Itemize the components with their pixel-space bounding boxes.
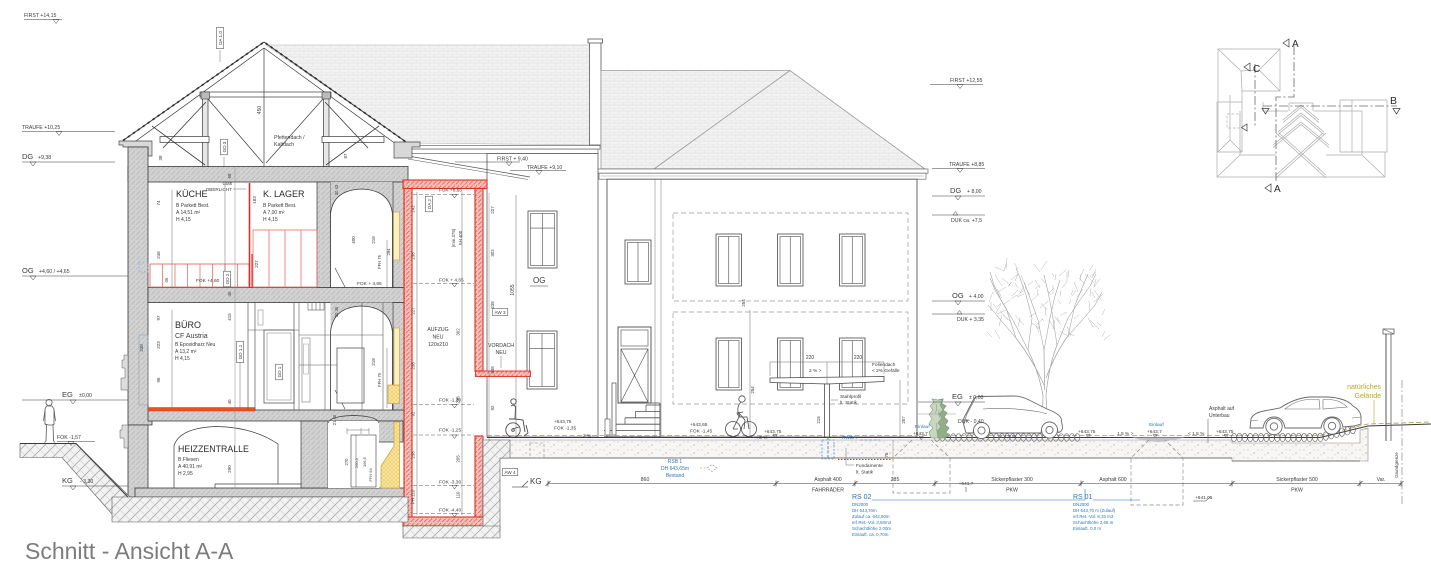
svg-text:DA 2: DA 2 <box>427 199 432 209</box>
svg-text:227: 227 <box>411 307 416 315</box>
svg-text:218: 218 <box>371 236 376 244</box>
svg-text:< 1,5 %: < 1,5 % <box>1000 434 1017 440</box>
svg-text:227: 227 <box>254 260 259 268</box>
svg-text:KÜCHE: KÜCHE <box>176 189 208 199</box>
svg-text:Stahlprofil: Stahlprofil <box>840 394 861 400</box>
svg-text:+643,75: +643,75 <box>764 429 782 435</box>
svg-text:Asphalt auf: Asphalt auf <box>1209 406 1235 412</box>
svg-text:110: 110 <box>456 491 461 499</box>
svg-text:257: 257 <box>901 416 906 424</box>
svg-text:254: 254 <box>741 299 746 307</box>
svg-text:DH 643,70 m (Zulauf): DH 643,70 m (Zulauf) <box>1073 508 1116 513</box>
svg-text:OBERLICHT: OBERLICHT <box>206 187 232 192</box>
svg-text:FIRST +14,15: FIRST +14,15 <box>24 13 56 19</box>
svg-text:1,5 % >: 1,5 % > <box>1117 431 1134 437</box>
svg-text:NEU: NEU <box>433 335 444 341</box>
svg-text:45: 45 <box>227 291 232 297</box>
svg-text:Unterbau: Unterbau <box>1209 413 1230 419</box>
svg-text:A 7,00 m²: A 7,00 m² <box>263 210 285 216</box>
svg-text:PH 110: PH 110 <box>411 489 416 504</box>
svg-text:30 36: 30 36 <box>334 306 339 317</box>
svg-text:238: 238 <box>411 451 416 459</box>
svg-text:Pfettendach /: Pfettendach / <box>274 135 305 141</box>
svg-text:338: 338 <box>139 344 144 352</box>
svg-text:Asphalt 600: Asphalt 600 <box>1099 477 1127 483</box>
svg-text:Grundgrenze: Grundgrenze <box>1394 452 1399 478</box>
svg-text:RSB 1: RSB 1 <box>668 459 683 465</box>
svg-text:DG: DG <box>22 152 33 161</box>
svg-text:H 4,15: H 4,15 <box>176 217 191 223</box>
svg-text:+643,7: +643,7 <box>1147 429 1162 435</box>
svg-text:DN2000: DN2000 <box>852 502 869 507</box>
svg-text:RWDA: RWDA <box>842 435 857 441</box>
svg-text:DUK - 0,40: DUK - 0,40 <box>958 419 984 425</box>
svg-text:Sickerpflaster 300: Sickerpflaster 300 <box>991 477 1033 483</box>
svg-text:30 43: 30 43 <box>334 184 339 195</box>
svg-text:SH 400: SH 400 <box>458 230 463 245</box>
svg-text:+641,05: +641,05 <box>1195 495 1213 501</box>
svg-text:B Parkett Best.: B Parkett Best. <box>176 203 209 209</box>
svg-text:2 %: 2 % <box>583 433 592 439</box>
svg-text:FOK -4,40: FOK -4,40 <box>439 508 461 514</box>
svg-text:AUFZUG: AUFZUG <box>427 327 448 333</box>
svg-text:AW 3: AW 3 <box>494 310 506 315</box>
svg-text:06: 06 <box>164 277 169 282</box>
svg-text:238: 238 <box>411 362 416 370</box>
svg-text:FOK +4,60: FOK +4,60 <box>196 278 220 284</box>
svg-text:Bestand: Bestand <box>666 473 685 479</box>
svg-text:+641,7: +641,7 <box>959 481 974 487</box>
svg-text:TRAUFE +9,10: TRAUFE +9,10 <box>527 165 562 171</box>
svg-text:erf.Ret.-Vol. 8,33 m3: erf.Ret.-Vol. 8,33 m3 <box>1073 514 1114 519</box>
svg-text:±0,00: ±0,00 <box>79 393 92 399</box>
svg-text:Schnitt - Ansicht A-A: Schnitt - Ansicht A-A <box>25 538 234 564</box>
svg-text:TRAUFE +10,25: TRAUFE +10,25 <box>22 125 60 131</box>
svg-text:+643,75: +643,75 <box>554 419 572 425</box>
svg-text:+643,75: +643,75 <box>1216 429 1234 435</box>
svg-text:Fundamente: Fundamente <box>856 463 883 469</box>
svg-text:97: 97 <box>156 315 161 321</box>
svg-text:BÜRO: BÜRO <box>175 320 201 330</box>
svg-text:natürliches: natürliches <box>1347 384 1381 391</box>
svg-text:FOK -1,35: FOK -1,35 <box>554 426 576 432</box>
svg-text:183: 183 <box>252 196 257 204</box>
svg-text:96: 96 <box>156 377 161 383</box>
svg-text:B Epoxidharz Neu: B Epoxidharz Neu <box>175 342 216 348</box>
svg-text:A 40,91 m²: A 40,91 m² <box>178 464 203 470</box>
svg-text:218: 218 <box>371 358 376 366</box>
svg-text:270: 270 <box>344 458 349 466</box>
svg-text:Foliendach: Foliendach <box>872 362 896 368</box>
svg-text:B Fliesen: B Fliesen <box>178 457 199 463</box>
svg-text:+ 8,00: + 8,00 <box>967 189 982 195</box>
svg-text:DA 1.0: DA 1.0 <box>218 31 223 45</box>
svg-text:400: 400 <box>351 236 356 244</box>
svg-text:+9,38: +9,38 <box>38 155 51 161</box>
svg-text:EG: EG <box>952 392 963 401</box>
svg-text:246: 246 <box>156 251 161 259</box>
svg-text:Einlauft. ca. 0,70m: Einlauft. ca. 0,70m <box>852 532 889 537</box>
svg-text:DH 643,70m: DH 643,70m <box>852 508 877 513</box>
svg-text:< 3 %: < 3 % <box>755 435 768 441</box>
svg-text:DN2000: DN2000 <box>1073 502 1090 507</box>
svg-text:A 13,2 m²: A 13,2 m² <box>175 349 197 355</box>
svg-text:H 4,15: H 4,15 <box>263 217 278 223</box>
svg-text:DUK + 3,35: DUK + 3,35 <box>957 317 984 323</box>
svg-text:+643,65: +643,65 <box>690 422 708 428</box>
svg-text:H 2,95: H 2,95 <box>178 471 193 477</box>
svg-text:RS 02: RS 02 <box>852 494 872 501</box>
svg-text:1055: 1055 <box>510 284 516 295</box>
svg-text:K. LAGER: K. LAGER <box>263 189 305 199</box>
svg-text:74: 74 <box>156 200 161 206</box>
svg-text:FAHRRÄDER: FAHRRÄDER <box>812 487 844 494</box>
svg-text:CF Austria: CF Austria <box>175 333 208 340</box>
svg-text:OG: OG <box>533 276 545 285</box>
svg-text:lt. Statik: lt. Statik <box>840 400 858 406</box>
svg-text:+ 4,00: + 4,00 <box>969 294 984 300</box>
svg-text:294: 294 <box>386 248 391 256</box>
svg-text:FOK + 4,65: FOK + 4,65 <box>357 281 382 287</box>
svg-text:Einlauf: Einlauf <box>915 424 930 430</box>
svg-text:450: 450 <box>257 106 263 115</box>
svg-text:PKW: PKW <box>1291 488 1303 494</box>
svg-text:223: 223 <box>156 341 161 349</box>
svg-text:< 1,5 %: < 1,5 % <box>1188 431 1205 437</box>
svg-text:38: 38 <box>158 155 163 161</box>
svg-text:+4,60 / +4,65: +4,60 / +4,65 <box>39 269 70 275</box>
svg-text:75: 75 <box>884 452 889 457</box>
svg-text:Glas: Glas <box>223 181 233 186</box>
svg-text:GD 2: GD 2 <box>225 273 230 284</box>
svg-text:860: 860 <box>641 477 650 483</box>
svg-text:238: 238 <box>456 396 461 404</box>
svg-text:A: A <box>1292 39 1299 50</box>
svg-text:254: 254 <box>750 386 755 394</box>
svg-text:OG: OG <box>22 266 34 275</box>
svg-text:Var.: Var. <box>1377 477 1386 483</box>
svg-text:Einlauf: Einlauf <box>1149 422 1164 428</box>
svg-text:285: 285 <box>891 477 900 483</box>
svg-text:DG: DG <box>950 186 961 195</box>
svg-text:302: 302 <box>456 328 461 336</box>
svg-text:GD 1.1: GD 1.1 <box>238 344 243 359</box>
svg-text:VORDACH: VORDACH <box>488 343 514 349</box>
svg-text:Gelände: Gelände <box>1355 393 1382 400</box>
svg-text:Sickerpflaster 500: Sickerpflaster 500 <box>1276 477 1318 483</box>
svg-text:FOK -3,30: FOK -3,30 <box>439 480 461 486</box>
svg-text:KG: KG <box>530 477 542 486</box>
svg-text:(min.375): (min.375) <box>451 228 456 247</box>
svg-text:FFH 94: FFH 94 <box>368 468 373 482</box>
svg-text:92: 92 <box>490 405 495 410</box>
svg-text:+643,75: +643,75 <box>1078 429 1096 435</box>
svg-text:B Parkett Best.: B Parkett Best. <box>263 203 296 209</box>
svg-text:B: B <box>1390 95 1397 107</box>
svg-text:+643,7: +643,7 <box>913 431 928 437</box>
svg-text:FFH 76: FFH 76 <box>377 372 382 387</box>
svg-text:A 14,51 m²: A 14,51 m² <box>176 210 201 216</box>
svg-text:FUK +8,65: FUK +8,65 <box>439 188 462 194</box>
svg-text:FIRST +12,55: FIRST +12,55 <box>950 78 982 84</box>
svg-text:DH 643,65m: DH 643,65m <box>661 466 689 472</box>
svg-text:166,5: 166,5 <box>362 456 367 467</box>
svg-text:68: 68 <box>227 173 232 179</box>
svg-text:FOK -1,25: FOK -1,25 <box>439 428 461 434</box>
svg-text:C: C <box>1253 64 1260 75</box>
svg-text:FOK + 4,65: FOK + 4,65 <box>439 278 464 284</box>
svg-text:Einlauft. 0,0 m: Einlauft. 0,0 m <box>1073 526 1101 531</box>
svg-text:DUK ca. +7,5: DUK ca. +7,5 <box>951 218 982 224</box>
svg-text:KG: KG <box>62 476 73 485</box>
svg-text:FOK -1,57: FOK -1,57 <box>57 435 81 441</box>
svg-text:PKW: PKW <box>1006 488 1018 494</box>
svg-text:120x210: 120x210 <box>428 342 448 348</box>
svg-text:AW 4: AW 4 <box>504 470 516 475</box>
svg-text:- 3,30: - 3,30 <box>80 479 93 485</box>
svg-text:GD 3: GD 3 <box>222 141 227 152</box>
svg-text:erf.Ret.-Vol. 3,93m3: erf.Ret.-Vol. 3,93m3 <box>852 520 892 525</box>
svg-text:TRAUFE +8,85: TRAUFE +8,85 <box>949 162 984 168</box>
svg-text:Schachthöhe 2,00m: Schachthöhe 2,00m <box>852 526 891 531</box>
svg-text:415: 415 <box>227 313 232 321</box>
svg-text:2 % >: 2 % > <box>809 368 822 374</box>
svg-text:GD 1: GD 1 <box>277 366 282 377</box>
svg-text:± 0,00: ± 0,00 <box>969 395 983 401</box>
svg-text:290: 290 <box>227 465 232 473</box>
svg-text:92: 92 <box>411 411 416 416</box>
svg-text:lt. Statik: lt. Statik <box>856 470 874 476</box>
svg-text:215: 215 <box>816 416 821 424</box>
svg-text:FOK -1,45: FOK -1,45 <box>690 429 712 435</box>
svg-text:< 2% Gefälle: < 2% Gefälle <box>872 368 900 374</box>
svg-text:21 40: 21 40 <box>332 414 337 425</box>
svg-text:220: 220 <box>806 355 815 361</box>
svg-text:Zulauf ca. 642,90m: Zulauf ca. 642,90m <box>852 514 890 519</box>
svg-text:Schachthöhe 2,65 m: Schachthöhe 2,65 m <box>1073 520 1114 525</box>
svg-text:220: 220 <box>854 355 863 361</box>
svg-text:A: A <box>1274 184 1281 195</box>
svg-text:142: 142 <box>411 205 416 213</box>
svg-text:FIRST + 9,40: FIRST + 9,40 <box>497 157 528 163</box>
svg-text:302: 302 <box>490 249 495 257</box>
svg-text:NEU: NEU <box>496 350 507 356</box>
svg-text:HEIZZENTRALLE: HEIZZENTRALLE <box>178 444 249 454</box>
svg-text:40: 40 <box>227 399 232 405</box>
svg-text:205: 205 <box>456 455 461 463</box>
svg-text:238: 238 <box>411 252 416 260</box>
svg-text:87: 87 <box>343 153 348 159</box>
svg-text:260,5: 260,5 <box>354 457 359 468</box>
svg-text:Asphalt 400: Asphalt 400 <box>814 477 842 483</box>
svg-text:238: 238 <box>490 301 495 309</box>
svg-text:227: 227 <box>490 206 495 214</box>
svg-text:RS 01: RS 01 <box>1073 494 1093 501</box>
svg-text:H 4,15: H 4,15 <box>175 356 190 362</box>
svg-text:OG: OG <box>952 291 964 300</box>
svg-text:FFH 76: FFH 76 <box>377 254 382 269</box>
svg-text:Kaltdach: Kaltdach <box>274 142 294 148</box>
svg-text:238: 238 <box>490 366 495 374</box>
svg-text:EG: EG <box>62 390 73 399</box>
